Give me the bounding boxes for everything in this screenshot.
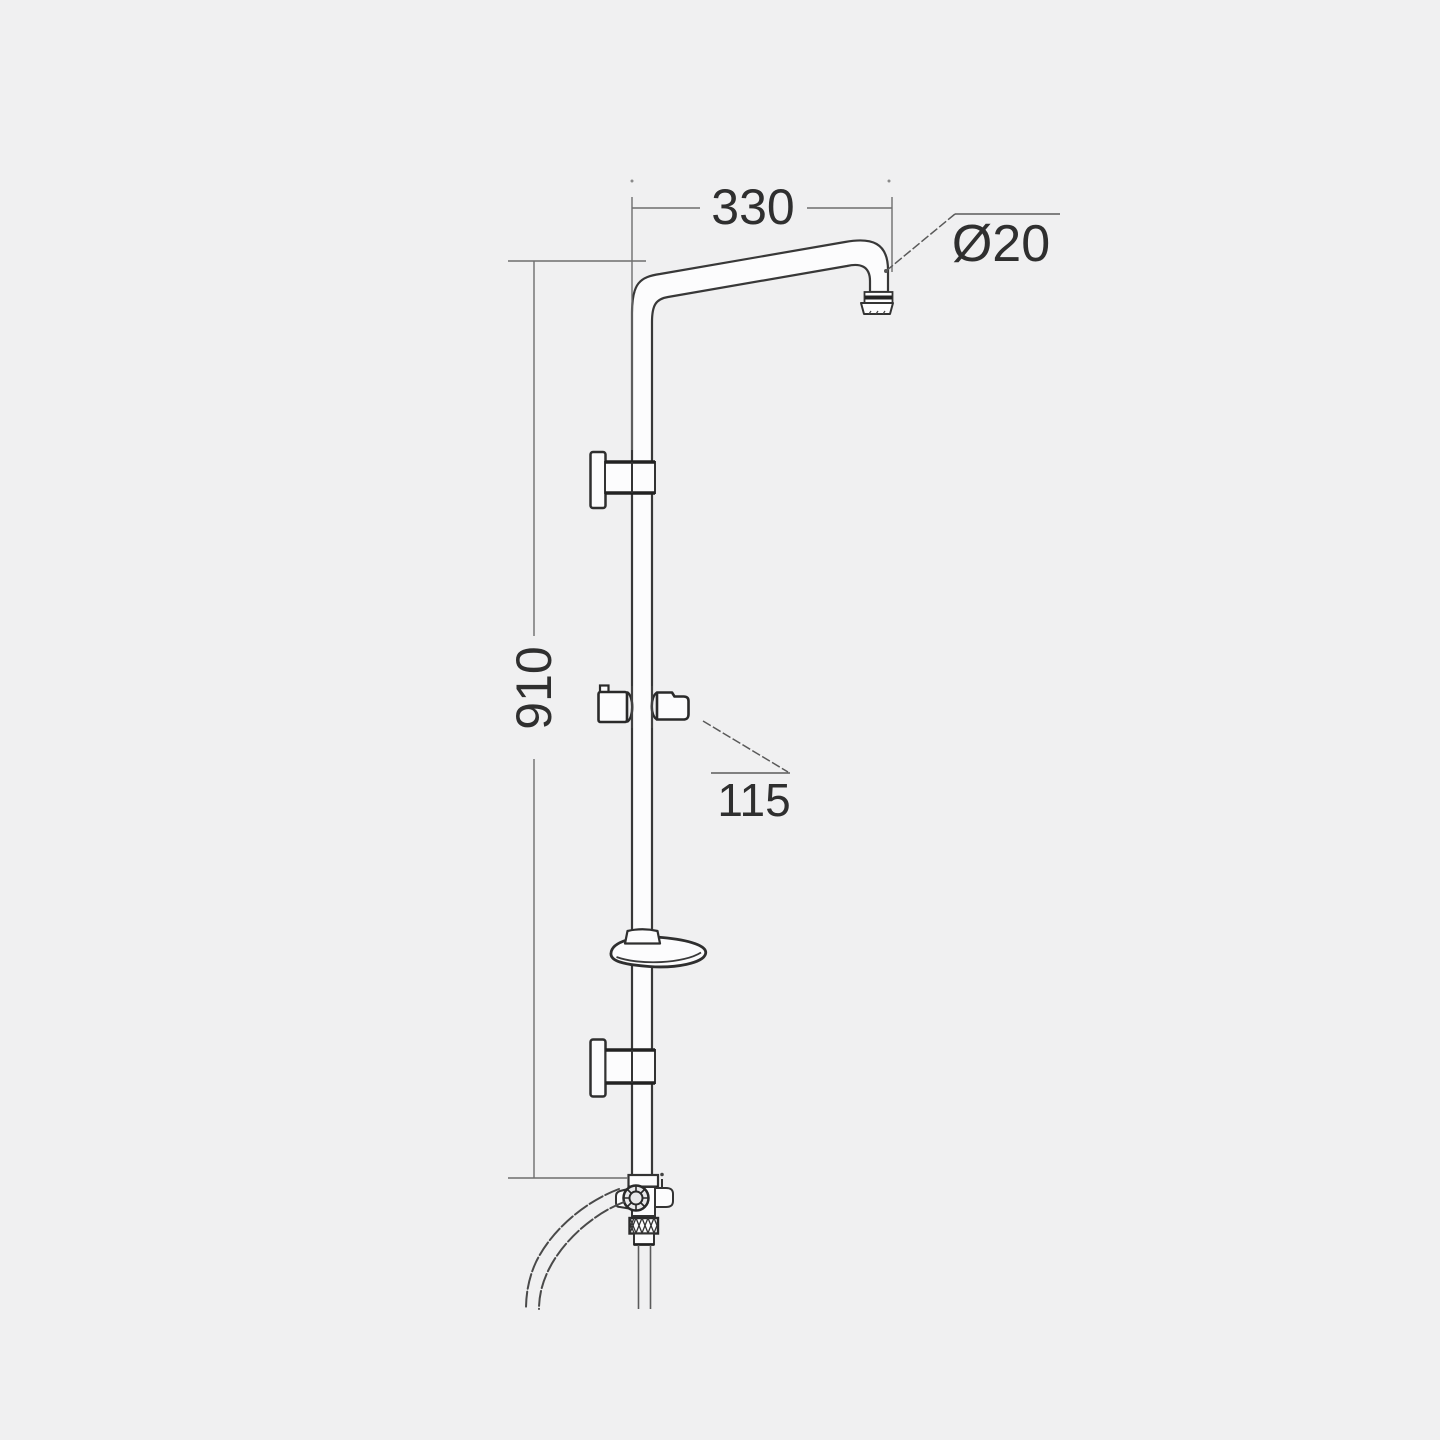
drawing-canvas: 330 Ø20 910 115 <box>0 0 1440 1440</box>
dim-holder-projection-label: 115 <box>717 774 790 826</box>
technical-drawing: 330 Ø20 910 115 <box>0 0 1440 1440</box>
dim-outlet-diameter-label: Ø20 <box>952 215 1050 273</box>
knurled-ring <box>630 1218 659 1234</box>
diverter-outlet <box>655 1188 673 1207</box>
dim-rail-height-label: 910 <box>506 646 562 729</box>
dim-arm-reach-label: 330 <box>711 179 794 235</box>
dimension-outlet-diameter: Ø20 <box>884 214 1060 273</box>
arm-outlet <box>861 292 893 314</box>
soap-dish <box>611 929 706 967</box>
down-pipe <box>639 1245 651 1309</box>
shower-hose <box>526 1189 624 1309</box>
diverter-assembly <box>616 1173 673 1245</box>
dimension-holder-projection: 115 <box>703 721 791 826</box>
dimension-arm-reach: 330 <box>631 179 893 450</box>
